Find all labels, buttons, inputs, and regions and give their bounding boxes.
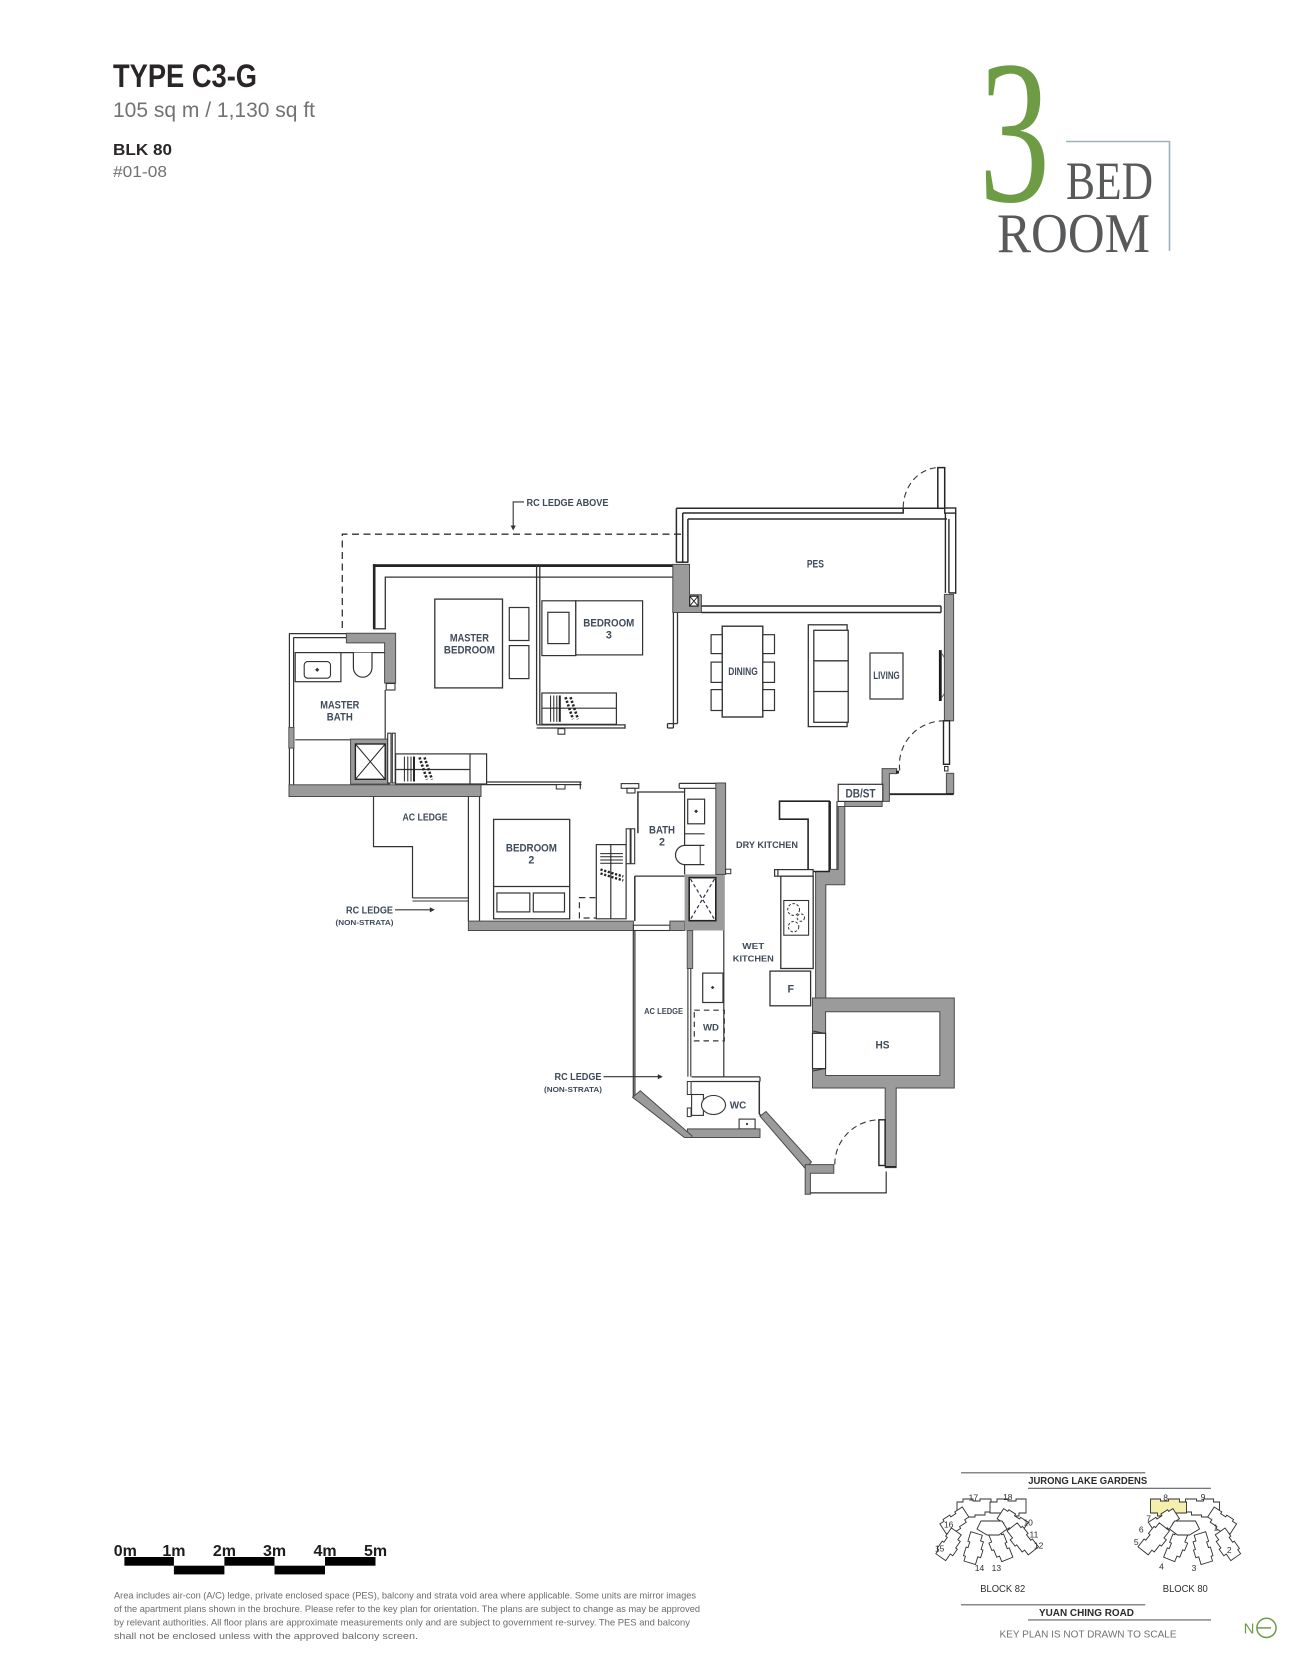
svg-text:WC: WC xyxy=(730,1100,747,1111)
svg-text:8: 8 xyxy=(1163,1492,1168,1502)
svg-text:YUAN CHING ROAD: YUAN CHING ROAD xyxy=(1039,1607,1134,1619)
svg-text:N: N xyxy=(1244,1620,1255,1637)
svg-text:11: 11 xyxy=(1029,1529,1038,1539)
svg-text:105 sq m / 1,130 sq ft: 105 sq m / 1,130 sq ft xyxy=(113,99,315,122)
svg-text:AC LEDGE: AC LEDGE xyxy=(644,1007,683,1016)
svg-text:WET: WET xyxy=(742,942,764,951)
svg-text:5: 5 xyxy=(1134,1537,1139,1547)
svg-text:3: 3 xyxy=(606,630,612,642)
svg-text:BLOCK 82: BLOCK 82 xyxy=(980,1583,1025,1595)
svg-text:DINING: DINING xyxy=(728,666,758,678)
svg-text:BATH: BATH xyxy=(327,712,353,724)
svg-text:by relevant authorities. All f: by relevant authorities. All floor plans… xyxy=(114,1616,690,1627)
svg-text:WD: WD xyxy=(703,1023,719,1033)
svg-text:shall not be enclosed unless w: shall not be enclosed unless with the ap… xyxy=(114,1630,418,1641)
svg-text:12: 12 xyxy=(1034,1541,1044,1551)
svg-text:KITCHEN: KITCHEN xyxy=(733,954,774,963)
svg-text:BATH: BATH xyxy=(649,825,675,837)
svg-text:RC LEDGE: RC LEDGE xyxy=(555,1072,602,1083)
svg-text:2: 2 xyxy=(528,855,534,867)
svg-text:DB/ST: DB/ST xyxy=(846,788,876,800)
svg-text:2: 2 xyxy=(1227,1545,1232,1555)
svg-text:15: 15 xyxy=(935,1543,945,1553)
svg-text:7: 7 xyxy=(1146,1513,1151,1523)
svg-text:Area includes air-con (A/C) le: Area includes air-con (A/C) ledge, priva… xyxy=(114,1590,696,1601)
svg-text:2: 2 xyxy=(659,837,665,849)
svg-text:TYPE C3-G: TYPE C3-G xyxy=(113,58,257,94)
svg-text:10: 10 xyxy=(1023,1518,1033,1528)
svg-text:ROOM: ROOM xyxy=(997,203,1150,265)
svg-text:RC LEDGE ABOVE: RC LEDGE ABOVE xyxy=(527,497,609,509)
svg-text:MASTER: MASTER xyxy=(450,632,489,644)
svg-text:1: 1 xyxy=(1213,1522,1218,1532)
svg-text:17: 17 xyxy=(969,1492,979,1502)
svg-text:BLOCK 80: BLOCK 80 xyxy=(1163,1583,1208,1595)
svg-text:14: 14 xyxy=(975,1563,985,1573)
svg-text:BLK 80: BLK 80 xyxy=(113,142,172,159)
svg-text:PES: PES xyxy=(807,558,824,570)
svg-text:(NON-STRATA): (NON-STRATA) xyxy=(336,918,394,927)
svg-text:13: 13 xyxy=(992,1563,1002,1573)
svg-text:DRY KITCHEN: DRY KITCHEN xyxy=(736,840,798,850)
svg-text:KEY PLAN IS NOT DRAWN TO SCALE: KEY PLAN IS NOT DRAWN TO SCALE xyxy=(1000,1629,1177,1640)
svg-text:BEDROOM: BEDROOM xyxy=(506,843,557,855)
svg-text:BEDROOM: BEDROOM xyxy=(444,644,495,656)
svg-text:MASTER: MASTER xyxy=(320,700,359,712)
svg-text:AC LEDGE: AC LEDGE xyxy=(403,813,448,824)
svg-text:BEDROOM: BEDROOM xyxy=(583,618,634,630)
svg-text:18: 18 xyxy=(1003,1492,1013,1502)
svg-text:4: 4 xyxy=(1159,1562,1164,1572)
svg-text:RC LEDGE: RC LEDGE xyxy=(346,905,393,916)
svg-text:of the apartment plans shown i: of the apartment plans shown in the broc… xyxy=(114,1603,700,1614)
svg-text:9: 9 xyxy=(1201,1492,1206,1502)
svg-text:3: 3 xyxy=(1192,1563,1197,1573)
svg-text:BED: BED xyxy=(1066,151,1153,211)
svg-text:LIVING: LIVING xyxy=(873,670,900,682)
svg-text:(NON-STRATA): (NON-STRATA) xyxy=(544,1085,602,1094)
svg-text:JURONG LAKE GARDENS: JURONG LAKE GARDENS xyxy=(1028,1475,1147,1487)
svg-text:HS: HS xyxy=(876,1039,890,1051)
svg-text:#01-08: #01-08 xyxy=(113,164,167,181)
svg-text:16: 16 xyxy=(944,1519,954,1529)
svg-text:6: 6 xyxy=(1139,1525,1144,1535)
svg-text:F: F xyxy=(788,983,795,995)
